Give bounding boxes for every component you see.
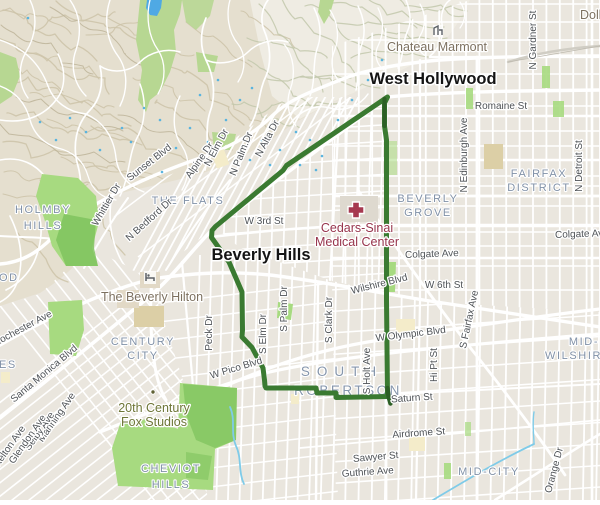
svg-text:N Gardner St: N Gardner St — [528, 10, 539, 69]
svg-text:Cedars-Sinai: Cedars-Sinai — [321, 221, 393, 235]
svg-text:West Hollywood: West Hollywood — [369, 70, 496, 88]
svg-text:HOLMBY: HOLMBY — [15, 204, 71, 216]
svg-text:Colgate Ave: Colgate Ave — [405, 248, 460, 261]
svg-text:HILLS: HILLS — [152, 479, 191, 491]
svg-text:DISTRICT: DISTRICT — [507, 182, 571, 194]
svg-text:Colgate Ave: Colgate Ave — [555, 228, 600, 241]
svg-text:S Elm Dr: S Elm Dr — [258, 313, 269, 354]
svg-text:Peck Dr: Peck Dr — [204, 315, 215, 351]
svg-text:The Beverly Hilton: The Beverly Hilton — [101, 290, 203, 304]
svg-text:ES: ES — [0, 359, 17, 371]
svg-text:CITY: CITY — [127, 350, 158, 362]
svg-text:OD: OD — [0, 272, 19, 284]
svg-text:HILLS: HILLS — [24, 220, 63, 232]
svg-text:Dolb: Dolb — [580, 8, 600, 22]
svg-text:S Holt Ave: S Holt Ave — [362, 347, 373, 394]
svg-text:CHEVIOT: CHEVIOT — [141, 463, 201, 475]
svg-text:N Detroit St: N Detroit St — [574, 140, 585, 192]
svg-text:S Palm Dr: S Palm Dr — [279, 286, 290, 332]
svg-text:MID-CITY: MID-CITY — [458, 466, 520, 478]
svg-text:Beverly Hills: Beverly Hills — [211, 246, 310, 264]
svg-text:Romaine St: Romaine St — [475, 101, 527, 112]
svg-text:MID-: MID- — [569, 336, 599, 348]
svg-text:BEVERLY: BEVERLY — [397, 193, 458, 205]
svg-text:Hi Pt St: Hi Pt St — [429, 348, 440, 382]
svg-text:Medical Center: Medical Center — [315, 235, 399, 249]
svg-text:W 6th St: W 6th St — [425, 280, 464, 291]
svg-text:CENTURY: CENTURY — [111, 336, 175, 348]
svg-text:WILSHIRE: WILSHIRE — [545, 350, 600, 362]
svg-text:GROVE: GROVE — [404, 207, 452, 219]
svg-text:Chateau Marmont: Chateau Marmont — [387, 40, 488, 54]
svg-text:FAIRFAX: FAIRFAX — [511, 168, 567, 180]
svg-text:W 3rd St: W 3rd St — [245, 216, 284, 227]
svg-text:S Clark Dr: S Clark Dr — [324, 296, 335, 343]
svg-text:Fox Studios: Fox Studios — [121, 415, 187, 429]
svg-text:20th Century: 20th Century — [118, 401, 190, 415]
svg-text:N Edinburgh Ave: N Edinburgh Ave — [459, 117, 470, 192]
